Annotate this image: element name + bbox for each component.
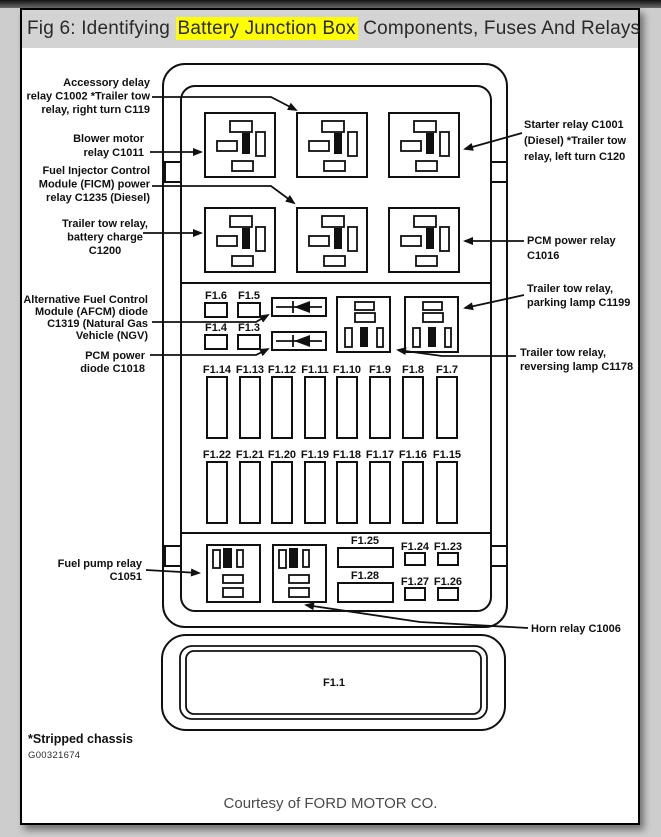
pin (217, 141, 237, 151)
fuse-small-label: F1.27 (401, 576, 429, 588)
callout-trailer-tow-parking-lamp-text: parking lamp C1199 (527, 297, 630, 309)
callout-trailer-tow-battery-charge-text: C1200 (89, 245, 121, 257)
fuse-mid-label: F1.3 (238, 322, 260, 334)
fuse-row2-0 (207, 462, 227, 523)
fuse-wide-label: F1.25 (351, 535, 379, 547)
relay-horn-body (273, 545, 326, 602)
fuse-row2-label: F1.19 (301, 449, 329, 461)
pin (324, 256, 345, 266)
relay-fuel-pump (207, 545, 260, 602)
fuse-wide-0 (338, 548, 393, 567)
callout-starter-relay-arrowhead-icon (463, 143, 474, 151)
credit-line: Courtesy of FORD MOTOR CO. (0, 795, 661, 812)
callout-horn-relay-arrowhead-icon (304, 602, 314, 610)
callout-starter-relay-text: (Diesel) *Trailer tow (524, 135, 627, 147)
callout-fuel-pump-relay-text: Fuel pump relay (58, 558, 143, 570)
pin (223, 588, 243, 597)
callout-pcm-power-diode-text: diode C1018 (80, 363, 145, 375)
fuse-row2-2 (272, 462, 292, 523)
pin-filled (289, 548, 298, 568)
fuse-small-1 (438, 553, 458, 565)
pin (401, 141, 421, 151)
fuse-row2-6 (403, 462, 423, 523)
relay-trailer-tow-battery (205, 208, 275, 272)
pin-filled (426, 228, 434, 249)
pin (230, 216, 252, 227)
fuse-box-diagram: F1.6F1.5F1.4F1.3F1.14F1.22F1.13F1.21F1.1… (0, 0, 661, 837)
callout-pcm-power-relay (463, 237, 524, 245)
fuse-small-2 (405, 588, 425, 600)
callout-trailer-tow-battery-charge-arrowhead-icon (193, 229, 203, 237)
callout-blower-motor-relay-arrowhead-icon (193, 148, 203, 156)
fuse-row1-label: F1.12 (268, 364, 296, 376)
fuse-row2-1 (240, 462, 260, 523)
pin (348, 227, 357, 251)
pin (445, 328, 451, 347)
pin (279, 550, 286, 568)
callout-fuel-pump-relay-arrowhead-icon (191, 569, 201, 577)
callout-ficm-power-relay-line (152, 186, 294, 203)
fuse-row2-label: F1.18 (333, 449, 361, 461)
callout-starter-relay (463, 133, 522, 151)
fuse-row2-label: F1.22 (203, 449, 231, 461)
fuse-row1-label: F1.14 (203, 364, 232, 376)
pin (414, 121, 436, 132)
fuse-small-3 (438, 588, 458, 600)
fuse-mid-0 (205, 303, 227, 317)
fuse-row1-label: F1.7 (436, 364, 458, 376)
pin (348, 132, 357, 156)
fuse-row1-label: F1.11 (301, 364, 329, 376)
relay-reversing-lamp (337, 297, 390, 352)
pin (324, 161, 345, 171)
pin (232, 256, 253, 266)
callout-blower-motor-relay-text: relay C1011 (83, 147, 144, 159)
pin (345, 328, 352, 347)
callout-fuel-pump-relay (146, 569, 201, 577)
fuse-row2-4 (337, 462, 357, 523)
pin (237, 550, 243, 567)
fuse-row1-7 (437, 377, 457, 438)
callout-pcm-power-relay-text: C1016 (527, 250, 559, 262)
fuse-wide-1 (338, 583, 393, 602)
fuse-mid-label: F1.5 (238, 290, 260, 302)
fuse-row1-3 (305, 377, 325, 438)
pin (423, 302, 442, 310)
fuse-row2-5 (370, 462, 390, 523)
callout-ficm-power-relay-text: Module (FICM) power (39, 179, 151, 191)
callout-fuel-pump-relay-text: C1051 (110, 571, 142, 583)
pin-filled (426, 133, 434, 154)
pin (230, 121, 252, 132)
callout-starter-relay-line (465, 133, 522, 149)
callout-trailer-tow-reversing-lamp-text: Trailer tow relay, (520, 347, 606, 359)
fuse-row2-label: F1.21 (236, 449, 264, 461)
callout-blower-motor-relay-text: Blower motor (73, 133, 145, 145)
fuse-row1-0 (207, 377, 227, 438)
pin (213, 550, 220, 568)
pin (309, 141, 329, 151)
case-mount-tab (491, 546, 507, 566)
pin (322, 216, 344, 227)
callout-horn-relay-text: Horn relay C1006 (531, 623, 621, 635)
pin (416, 161, 437, 171)
pin-filled (428, 327, 436, 347)
fuse-wide-label: F1.28 (351, 570, 379, 582)
callout-trailer-tow-parking-lamp (463, 295, 524, 310)
callout-trailer-tow-parking-lamp-text: Trailer tow relay, (527, 283, 613, 295)
afcm-diode-glyph (272, 298, 326, 316)
pin-filled (242, 133, 250, 154)
fuse-row1-label: F1.10 (333, 364, 361, 376)
fuse-row2-label: F1.20 (268, 449, 296, 461)
callout-afcm-diode-text: Module (AFCM) diode (35, 306, 148, 318)
callout-pcm-power-diode-text: PCM power (85, 350, 146, 362)
callout-ficm-power-relay-text: Fuel Injector Control (42, 165, 150, 177)
relay-top-middle (297, 113, 367, 177)
fuse-row1-2 (272, 377, 292, 438)
fuse-row1-label: F1.9 (369, 364, 391, 376)
pin (377, 328, 383, 347)
fuse-small-label: F1.26 (434, 576, 462, 588)
callout-pcm-power-relay-arrowhead-icon (463, 237, 473, 245)
callout-accessory-delay-relay-arrowhead-icon (287, 103, 298, 111)
pin (440, 227, 449, 251)
relay-pcm-power (389, 208, 459, 272)
callout-accessory-delay-relay-text: relay, right turn C119 (41, 104, 150, 116)
fuse-row1-4 (337, 377, 357, 438)
pin-filled (223, 548, 232, 568)
callout-pcm-power-diode-arrowhead-icon (259, 348, 270, 356)
callout-afcm-diode-text: Alternative Fuel Control (23, 294, 148, 306)
callout-pcm-power-relay-text: PCM power relay (527, 235, 617, 247)
pin (256, 132, 265, 156)
case-mount-tab (491, 162, 507, 182)
pin (322, 121, 344, 132)
pin (223, 575, 243, 583)
callout-trailer-tow-battery-charge-text: Trailer tow relay, (62, 218, 148, 230)
fuse-row1-label: F1.13 (236, 364, 264, 376)
fuse-row2-3 (305, 462, 325, 523)
callout-trailer-tow-parking-lamp-arrowhead-icon (463, 302, 474, 310)
pin (309, 236, 329, 246)
pin-filled (334, 133, 342, 154)
fuse-mid-label: F1.4 (205, 322, 228, 334)
callout-accessory-delay-relay (152, 97, 298, 111)
fuse-row1-6 (403, 377, 423, 438)
fuse-small-label: F1.24 (401, 541, 430, 553)
pin (289, 588, 309, 597)
callout-accessory-delay-relay-text: Accessory delay (63, 77, 151, 89)
callout-ficm-power-relay (152, 186, 296, 204)
diode-triangle-icon (294, 335, 310, 347)
pin (232, 161, 253, 171)
fuse-small-0 (405, 553, 425, 565)
callout-trailer-tow-parking-lamp-line (465, 295, 524, 308)
pin (217, 236, 237, 246)
relay-starter (389, 113, 459, 177)
callout-starter-relay-text: relay, left turn C120 (524, 151, 625, 163)
callout-ficm-power-relay-text: relay C1235 (Diesel) (46, 192, 150, 204)
pin-filled (360, 327, 368, 347)
case-mount-tab (165, 162, 181, 182)
pcm-diode-glyph (272, 332, 326, 350)
case-mount-tab (165, 546, 181, 566)
callout-ficm-power-relay-arrowhead-icon (285, 195, 295, 204)
pin (414, 216, 436, 227)
pin (355, 302, 374, 310)
relay-horn (273, 545, 326, 602)
figure-id: G00321674 (28, 750, 80, 761)
fuse-mid-label: F1.6 (205, 290, 227, 302)
pin (401, 236, 421, 246)
pin (440, 132, 449, 156)
pin (423, 313, 443, 322)
relay-parking-lamp (405, 297, 458, 352)
pin-filled (334, 228, 342, 249)
callout-afcm-diode (152, 314, 270, 322)
callout-trailer-tow-battery-charge-text: battery charge (67, 232, 143, 244)
fuse-row2-label: F1.16 (399, 449, 427, 461)
callout-afcm-diode-text: C1319 (Natural Gas (47, 318, 148, 330)
pin (303, 550, 309, 567)
pin (413, 328, 420, 347)
fuse-mid-1 (238, 303, 260, 317)
fuse-small-label: F1.23 (434, 541, 462, 553)
pin (289, 575, 309, 583)
relay-fuel-pump-body (207, 545, 260, 602)
callout-accessory-delay-relay-text: relay C1002 *Trailer tow (26, 91, 150, 103)
pin (256, 227, 265, 251)
fuse-row2-7 (437, 462, 457, 523)
fuse-row1-1 (240, 377, 260, 438)
callout-trailer-tow-reversing-lamp-text: reversing lamp C1178 (520, 361, 633, 373)
callout-starter-relay-text: Starter relay C1001 (524, 119, 624, 131)
pin (355, 313, 375, 322)
fuse-mid-2 (205, 335, 227, 349)
fuse-mid-3 (238, 335, 260, 349)
fuse-row2-label: F1.15 (433, 449, 461, 461)
callout-accessory-delay-relay-line (152, 97, 296, 110)
diode-triangle-icon (294, 301, 310, 313)
relay-accessory-delay (205, 113, 275, 177)
callout-trailer-tow-battery-charge (143, 229, 203, 237)
footnote: *Stripped chassis (28, 732, 133, 746)
callout-afcm-diode-text: Vehicle (NGV) (76, 330, 148, 342)
pin-filled (242, 228, 250, 249)
fuse-row1-label: F1.8 (402, 364, 424, 376)
fuse-row2-label: F1.17 (366, 449, 394, 461)
callout-blower-motor-relay (150, 148, 203, 156)
main-fuse-label: F1.1 (323, 677, 345, 689)
relay-ficm (297, 208, 367, 272)
fuse-row1-5 (370, 377, 390, 438)
callout-trailer-tow-reversing-lamp-arrowhead-icon (396, 347, 406, 355)
pin (416, 256, 437, 266)
